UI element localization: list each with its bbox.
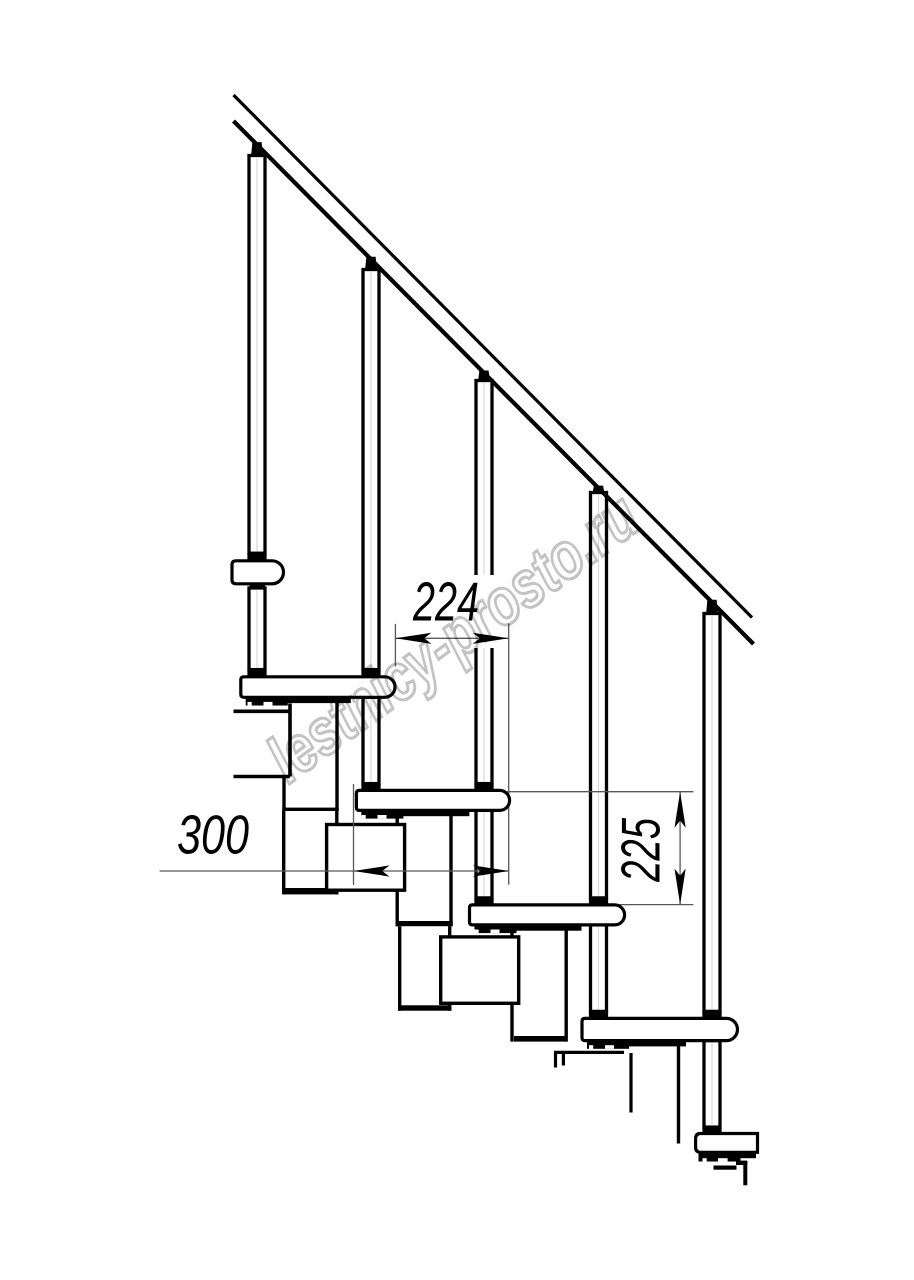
svg-text:225: 225 [610, 818, 672, 883]
svg-text:300: 300 [177, 804, 249, 866]
